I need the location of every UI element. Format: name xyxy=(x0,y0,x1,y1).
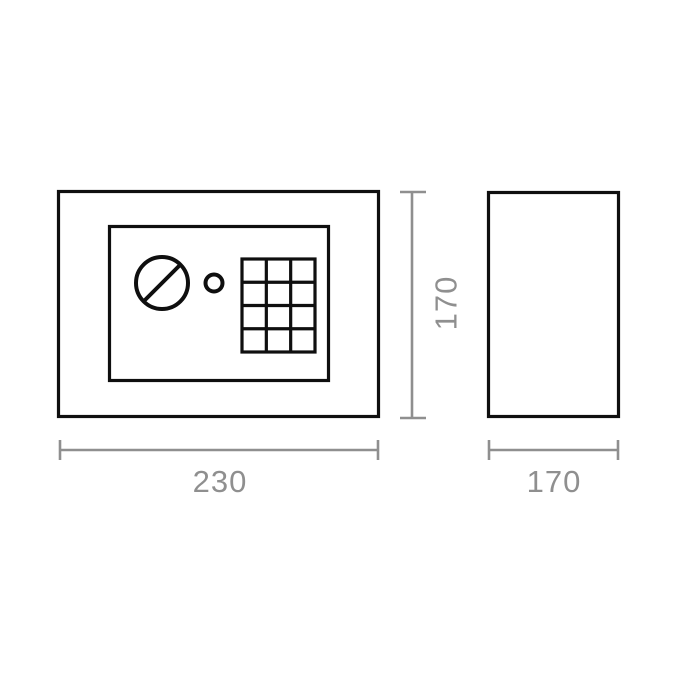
keyhole-icon xyxy=(206,275,223,292)
width-dimension: 230 xyxy=(60,440,378,499)
technical-drawing-canvas: 170 230 170 xyxy=(0,0,700,700)
height-dimension-label: 170 xyxy=(429,276,464,331)
height-dimension: 170 xyxy=(400,192,464,418)
width-dimension-label: 230 xyxy=(193,464,248,499)
side-view xyxy=(489,193,619,417)
safe-side-outline xyxy=(489,193,619,417)
safe-door-outline xyxy=(110,227,329,381)
keypad-grid xyxy=(242,259,315,352)
dial-pointer-line xyxy=(144,265,180,301)
dial-knob-icon xyxy=(136,257,188,309)
front-view xyxy=(59,192,379,417)
depth-dimension-label: 170 xyxy=(527,464,582,499)
keypad-icon xyxy=(242,259,315,352)
depth-dimension: 170 xyxy=(489,440,618,499)
safe-dimension-diagram: 170 230 170 xyxy=(0,0,700,700)
